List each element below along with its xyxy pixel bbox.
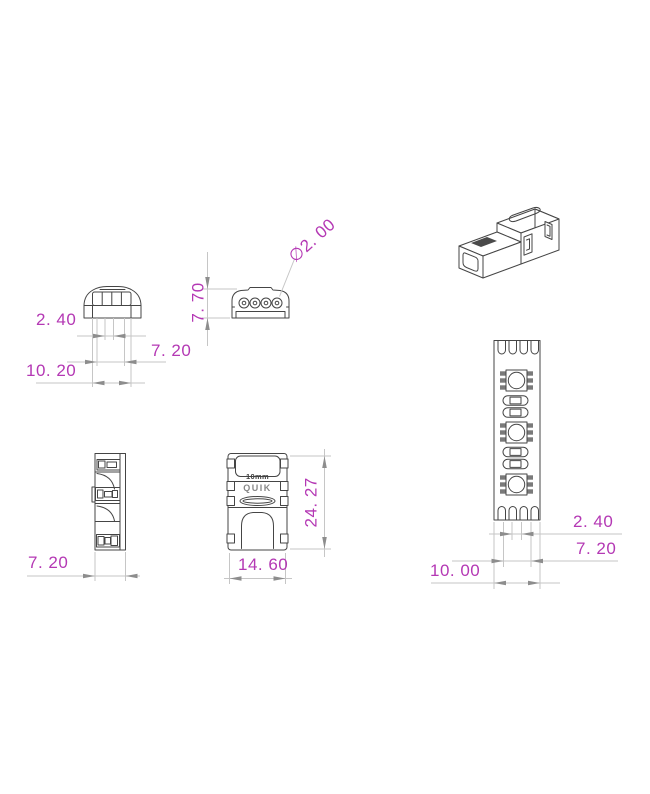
dim-label-strip-width: 10. 00 xyxy=(430,562,480,579)
dim-label-slot-inner: 2. 40 xyxy=(36,311,76,328)
view-end-holes xyxy=(232,288,289,319)
strip-channel-arch xyxy=(242,513,274,549)
led-package xyxy=(500,474,533,495)
dim-label-slot-mid: 7. 20 xyxy=(151,342,191,359)
led-package xyxy=(500,422,533,443)
dim-label-side-width: 7. 20 xyxy=(28,554,68,571)
dim-label-strip-inner: 7. 20 xyxy=(576,540,616,557)
smd-resistor xyxy=(503,447,528,457)
smd-resistor xyxy=(503,408,528,418)
strip-size-label: 10mm xyxy=(239,473,276,481)
view-end-cap xyxy=(84,287,141,319)
dim-label-body-length: 24. 27 xyxy=(303,478,320,528)
led-package xyxy=(500,370,533,391)
view-side xyxy=(92,454,126,551)
drawing-canvas xyxy=(0,0,650,794)
latch-clip xyxy=(545,222,552,240)
hole-leader-line xyxy=(280,259,295,297)
view-isometric xyxy=(459,207,559,278)
brand-logo-text: QUIK xyxy=(239,484,276,493)
smd-resistor xyxy=(503,396,528,406)
dim-label-height: 7. 70 xyxy=(190,280,207,326)
view-led-strip xyxy=(494,341,540,521)
smd-resistor xyxy=(503,459,528,469)
latch-clip xyxy=(524,234,532,255)
dim-label-slot-outer: 10. 20 xyxy=(26,362,76,379)
dim-label-strip-pad: 2. 40 xyxy=(573,513,613,530)
dim-label-body-width: 14. 60 xyxy=(238,556,288,573)
view-top xyxy=(227,454,288,551)
technical-drawing-page: 2. 40 7. 20 10. 20 7. 70 ∅2. 00 7. 20 24… xyxy=(0,0,650,794)
